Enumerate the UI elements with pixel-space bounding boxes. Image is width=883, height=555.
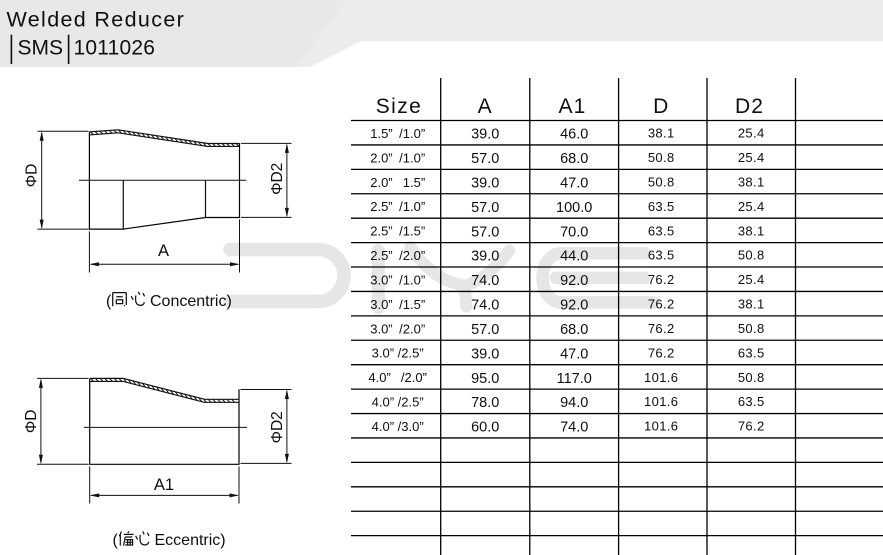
svg-text:3.0” /1.5”: 3.0” /1.5” bbox=[370, 297, 425, 312]
svg-text:76.2: 76.2 bbox=[648, 345, 675, 360]
svg-text:D: D bbox=[653, 95, 669, 118]
svg-text:3.0” /2.0”: 3.0” /2.0” bbox=[370, 321, 425, 336]
svg-text:3.0” /1.0”: 3.0” /1.0” bbox=[370, 272, 425, 287]
svg-text:A1: A1 bbox=[154, 476, 174, 494]
svg-text:92.0: 92.0 bbox=[560, 273, 588, 289]
svg-text:25.4: 25.4 bbox=[738, 199, 765, 214]
svg-text:57.0: 57.0 bbox=[471, 322, 499, 338]
svg-text:SMS: SMS bbox=[18, 37, 64, 60]
svg-text:47.0: 47.0 bbox=[560, 346, 588, 362]
svg-text:57.0: 57.0 bbox=[471, 151, 499, 167]
svg-text:4.0” /3.0”: 4.0” /3.0” bbox=[372, 419, 424, 434]
svg-text:76.2: 76.2 bbox=[738, 419, 765, 434]
svg-text:3.0” /2.5”: 3.0” /2.5” bbox=[372, 346, 424, 361]
svg-text:ΦD: ΦD bbox=[23, 410, 40, 434]
svg-text:2.0” /1.0”: 2.0” /1.0” bbox=[370, 150, 425, 165]
svg-text:39.0: 39.0 bbox=[471, 127, 499, 143]
svg-text:25.4: 25.4 bbox=[738, 272, 765, 287]
svg-text:70.0: 70.0 bbox=[560, 224, 588, 240]
svg-text:39.0: 39.0 bbox=[471, 176, 499, 192]
svg-text:63.5: 63.5 bbox=[648, 223, 675, 238]
svg-text:ΦD2: ΦD2 bbox=[269, 411, 286, 443]
svg-text:Size: Size bbox=[376, 95, 422, 118]
svg-text:63.5: 63.5 bbox=[648, 248, 675, 263]
svg-text:47.0: 47.0 bbox=[560, 176, 588, 192]
svg-text:ΦD: ΦD bbox=[23, 164, 40, 188]
svg-text:76.2: 76.2 bbox=[648, 297, 675, 312]
svg-text:A: A bbox=[158, 242, 169, 260]
svg-text:Welded Reducer: Welded Reducer bbox=[7, 8, 186, 32]
svg-text:38.1: 38.1 bbox=[738, 223, 765, 238]
svg-text:94.0: 94.0 bbox=[560, 395, 588, 411]
svg-text:2.5” /2.0”: 2.5” /2.0” bbox=[370, 248, 425, 263]
svg-text:38.1: 38.1 bbox=[738, 175, 765, 190]
svg-text:39.0: 39.0 bbox=[471, 249, 499, 265]
svg-text:74.0: 74.0 bbox=[471, 273, 499, 289]
svg-text:46.0: 46.0 bbox=[560, 127, 588, 143]
svg-text:Concentric): Concentric) bbox=[150, 293, 232, 310]
svg-text:76.2: 76.2 bbox=[648, 321, 675, 336]
svg-text:74.0: 74.0 bbox=[471, 298, 499, 314]
svg-text:4.0” /2.0”: 4.0” /2.0” bbox=[368, 370, 427, 385]
svg-text:25.4: 25.4 bbox=[738, 126, 765, 141]
svg-text:1011026: 1011026 bbox=[74, 37, 156, 60]
svg-text:57.0: 57.0 bbox=[471, 224, 499, 240]
svg-text:100.0: 100.0 bbox=[556, 200, 592, 216]
svg-text:A1: A1 bbox=[559, 95, 587, 118]
svg-text:38.1: 38.1 bbox=[738, 297, 765, 312]
svg-text:63.5: 63.5 bbox=[738, 345, 765, 360]
svg-text:44.0: 44.0 bbox=[560, 249, 588, 265]
svg-text:78.0: 78.0 bbox=[471, 395, 499, 411]
svg-text:76.2: 76.2 bbox=[648, 272, 675, 287]
svg-text:63.5: 63.5 bbox=[648, 199, 675, 214]
svg-text:25.4: 25.4 bbox=[738, 150, 765, 165]
svg-text:60.0: 60.0 bbox=[471, 420, 499, 436]
svg-text:4.0” /2.5”: 4.0” /2.5” bbox=[372, 395, 424, 410]
svg-text:117.0: 117.0 bbox=[557, 371, 592, 387]
svg-text:63.5: 63.5 bbox=[738, 394, 765, 409]
svg-text:57.0: 57.0 bbox=[471, 200, 499, 216]
svg-text:2.5” /1.5”: 2.5” /1.5” bbox=[370, 224, 425, 239]
svg-text:68.0: 68.0 bbox=[560, 151, 588, 167]
svg-text:101.6: 101.6 bbox=[644, 370, 678, 385]
svg-text:92.0: 92.0 bbox=[560, 298, 588, 314]
svg-text:(: ( bbox=[113, 532, 119, 549]
svg-text:2.5” /1.0”: 2.5” /1.0” bbox=[370, 199, 425, 214]
svg-text:50.8: 50.8 bbox=[738, 370, 765, 385]
svg-text:101.6: 101.6 bbox=[644, 419, 678, 434]
svg-text:Eccentric): Eccentric) bbox=[155, 532, 226, 549]
svg-text:ΦD2: ΦD2 bbox=[269, 163, 286, 195]
svg-text:95.0: 95.0 bbox=[471, 371, 499, 387]
svg-text:50.8: 50.8 bbox=[648, 150, 675, 165]
svg-text:2.0” 1.5”: 2.0” 1.5” bbox=[370, 175, 425, 190]
svg-text:38.1: 38.1 bbox=[648, 126, 675, 141]
svg-text:39.0: 39.0 bbox=[471, 346, 499, 362]
svg-text:50.8: 50.8 bbox=[738, 248, 765, 263]
svg-text:(: ( bbox=[106, 293, 112, 310]
svg-text:D2: D2 bbox=[735, 95, 764, 118]
svg-text:101.6: 101.6 bbox=[644, 394, 678, 409]
svg-text:50.8: 50.8 bbox=[648, 175, 675, 190]
svg-text:68.0: 68.0 bbox=[560, 322, 588, 338]
svg-text:A: A bbox=[478, 95, 493, 118]
svg-text:1.5” /1.0”: 1.5” /1.0” bbox=[370, 126, 425, 141]
svg-text:74.0: 74.0 bbox=[560, 420, 588, 436]
svg-text:50.8: 50.8 bbox=[738, 321, 765, 336]
